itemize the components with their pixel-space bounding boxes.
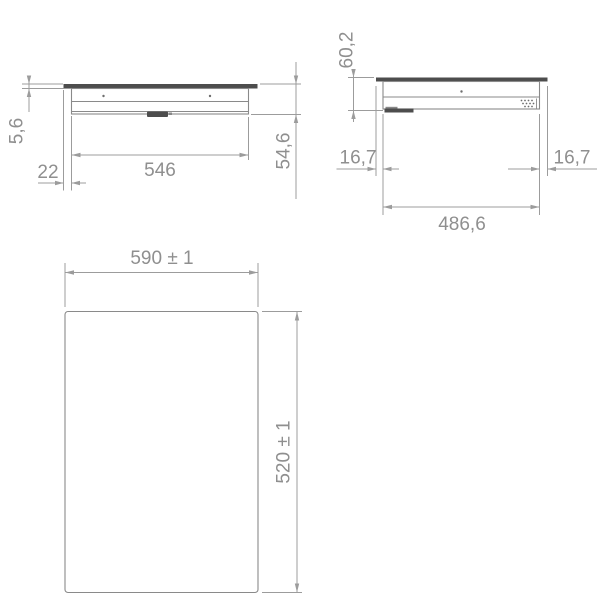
dim-cutout-depth: 520 ± 1: [262, 312, 302, 593]
connector-tab: [169, 113, 173, 116]
arrowhead-left: [383, 205, 392, 209]
dim-label-overhang-right: 16,7: [554, 148, 591, 169]
front-view: 60,2 16,7 16,7 486,6: [337, 32, 598, 235]
dim-label-edge-offset: 22: [37, 162, 58, 183]
arrowhead-left: [72, 181, 81, 185]
screw-dot-left: [102, 95, 104, 97]
arrowhead-right: [249, 270, 258, 274]
dim-label-cutout-width: 590 ± 1: [130, 248, 193, 269]
arrowhead-right: [531, 205, 540, 209]
dim-label-body-depth: 54,6: [274, 133, 295, 170]
dim-label-total-height: 60,2: [337, 32, 358, 69]
glass-panel-side: [64, 84, 258, 89]
arrowhead-left: [72, 153, 81, 157]
dim-label-overhang-left: 16,7: [340, 148, 377, 169]
screw-dot-right: [209, 95, 211, 97]
glass-panel-front: [376, 78, 548, 82]
dim-glass-thickness: 5,6: [7, 76, 71, 145]
dim-label-glass-thickness: 5,6: [7, 118, 28, 144]
dim-body-width-front: 486,6: [383, 205, 540, 235]
dim-cutout-width: 590 ± 1: [65, 248, 258, 307]
dim-label-body-width-side: 546: [144, 160, 176, 181]
arrowhead-left: [65, 270, 74, 274]
dim-body-depth: 54,6: [251, 62, 301, 199]
dim-label-body-width-front: 486,6: [438, 214, 486, 235]
appliance-body-front: [383, 82, 540, 110]
arrowhead-left: [383, 167, 392, 171]
terminal-connector-top: [386, 107, 398, 109]
side-view: 5,6 22 546 54,6: [7, 62, 301, 199]
arrowhead-up: [27, 89, 31, 98]
arrowhead-down: [294, 76, 298, 85]
terminal-connector-side: [147, 112, 168, 118]
arrowhead-down: [27, 76, 31, 85]
screw-dot-center: [460, 90, 462, 92]
arrowhead-up: [295, 312, 299, 321]
arrowhead-up: [351, 111, 355, 120]
arrowhead-up: [294, 115, 298, 124]
dim-body-width-side: 546: [72, 117, 249, 181]
arrowhead-right: [240, 153, 249, 157]
cooktop-outline-top: [65, 312, 258, 593]
top-view: 590 ± 1 520 ± 1: [65, 248, 302, 593]
terminal-connector-front: [385, 109, 414, 113]
arrowhead-right: [531, 167, 540, 171]
arrowhead-down: [351, 69, 355, 78]
technical-drawing-page: 5,6 22 546 54,6: [0, 0, 600, 600]
arrowhead-down: [295, 584, 299, 593]
cooktop-dimension-drawing: 5,6 22 546 54,6: [0, 0, 600, 600]
dim-label-cutout-depth: 520 ± 1: [274, 420, 295, 483]
